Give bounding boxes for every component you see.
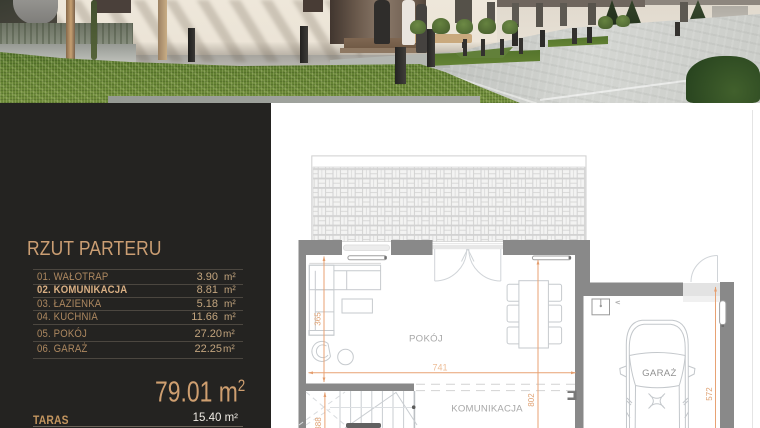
svg-text:GARAŻ: GARAŻ	[642, 368, 677, 379]
svg-text:802: 802	[527, 393, 536, 407]
svg-text:741: 741	[432, 362, 447, 372]
svg-text:365: 365	[314, 312, 323, 326]
svg-text:KOMUNIKACJA: KOMUNIKACJA	[451, 403, 523, 414]
svg-text:POKÓJ: POKÓJ	[409, 333, 443, 344]
svg-text:388: 388	[314, 417, 323, 428]
svg-text:572: 572	[705, 387, 714, 401]
